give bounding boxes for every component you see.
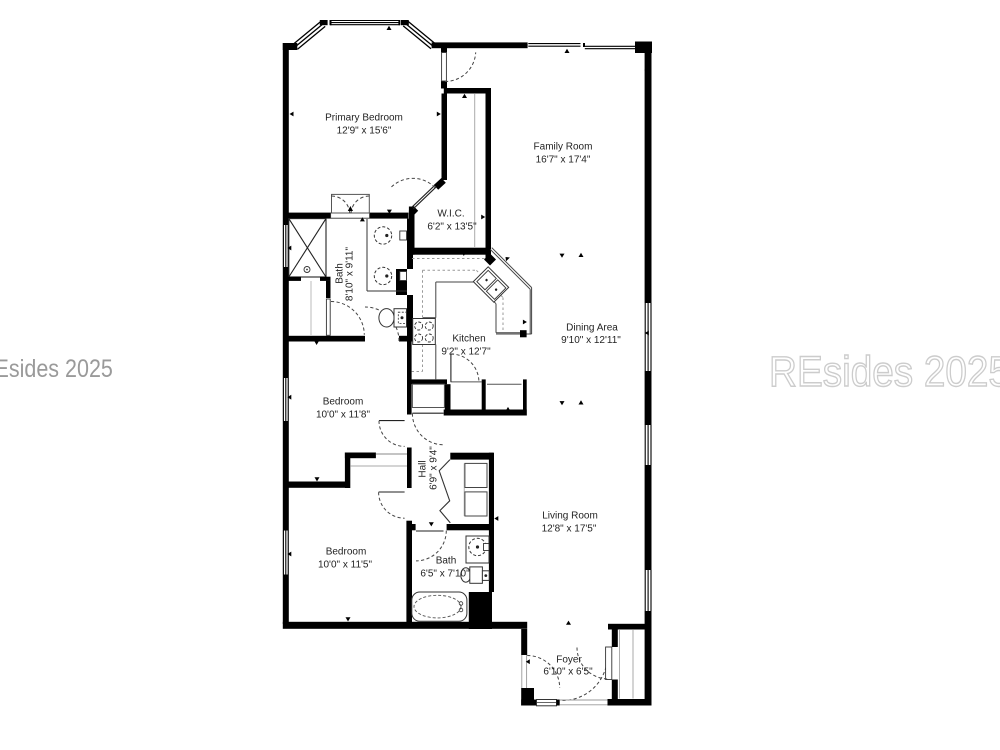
- svg-text:Foyer: Foyer: [556, 655, 582, 666]
- svg-text:12'8" x 17'5": 12'8" x 17'5": [542, 524, 597, 535]
- svg-text:Bedroom: Bedroom: [323, 397, 364, 408]
- svg-text:10'0" x 11'8": 10'0" x 11'8": [316, 410, 371, 421]
- svg-text:6'2" x 13'5": 6'2" x 13'5": [427, 222, 477, 233]
- svg-text:Bedroom: Bedroom: [326, 547, 367, 558]
- svg-text:6'9" x 9'4": 6'9" x 9'4": [428, 446, 439, 490]
- svg-text:Hall: Hall: [417, 460, 428, 477]
- svg-text:8'10" x 9'11": 8'10" x 9'11": [345, 247, 356, 302]
- svg-text:12'9" x 15'6": 12'9" x 15'6": [337, 126, 392, 137]
- svg-text:Dining Area: Dining Area: [566, 323, 618, 334]
- svg-text:16'7" x 17'4": 16'7" x 17'4": [536, 155, 591, 166]
- svg-text:Family Room: Family Room: [534, 142, 593, 153]
- svg-text:Bath: Bath: [436, 556, 457, 567]
- svg-text:9'2" x 12'7": 9'2" x 12'7": [441, 347, 491, 358]
- svg-text:W.I.C.: W.I.C.: [437, 209, 464, 220]
- svg-text:Primary Bedroom: Primary Bedroom: [325, 113, 403, 124]
- svg-text:9'10" x 12'11": 9'10" x 12'11": [561, 335, 621, 346]
- svg-text:Kitchen: Kitchen: [452, 334, 485, 345]
- svg-text:6'10" x 6'5": 6'10" x 6'5": [543, 667, 593, 678]
- svg-text:10'0" x 11'5": 10'0" x 11'5": [318, 560, 373, 571]
- svg-text:6'5" x 7'10": 6'5" x 7'10": [420, 569, 470, 580]
- svg-text:Living Room: Living Room: [542, 511, 598, 522]
